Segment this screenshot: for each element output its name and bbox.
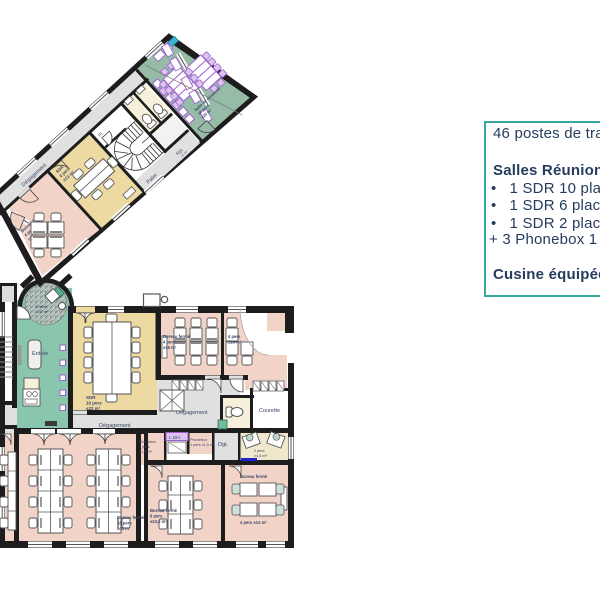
svg-text:Phonebox: Phonebox (139, 440, 156, 444)
svg-text:±23,5 m²: ±23,5 m² (150, 519, 167, 524)
svg-text:Dégagement: Dégagement (99, 423, 131, 429)
svg-text:4 pers: 4 pers (163, 340, 176, 345)
svg-text:±22 m²: ±22 m² (36, 309, 49, 314)
svg-text:Entrée: Entrée (32, 351, 48, 357)
svg-text:±1,5 m²: ±1,5 m² (139, 450, 153, 454)
svg-text:SDR: SDR (86, 395, 96, 400)
svg-text:±48 m²: ±48 m² (117, 526, 131, 531)
svg-text:Bureau fermé: Bureau fermé (150, 508, 178, 513)
svg-text:Bureau fermé: Bureau fermé (240, 474, 268, 479)
svg-text:6 pers: 6 pers (150, 514, 163, 519)
svg-text:Phonebox: Phonebox (190, 438, 207, 442)
svg-text:±4,5 m²: ±4,5 m² (254, 454, 268, 458)
svg-text:4 pers: 4 pers (228, 334, 241, 339)
svg-text:10 pers: 10 pers (86, 401, 102, 406)
svg-text:4 pers ±14 m²: 4 pers ±14 m² (240, 520, 267, 525)
svg-text:±16 m²: ±16 m² (163, 345, 177, 350)
svg-text:16 pers: 16 pers (117, 521, 132, 526)
svg-text:Courette: Courette (259, 408, 280, 414)
svg-text:Dgt.: Dgt. (218, 442, 229, 448)
svg-text:±22 m²: ±22 m² (86, 406, 101, 411)
svg-text:1 pers: 1 pers (139, 445, 150, 449)
svg-text:Bureau fermé: Bureau fermé (117, 515, 145, 520)
svg-text:L.DIA: L.DIA (169, 435, 180, 440)
svg-text:1 pers ±1,5 m²: 1 pers ±1,5 m² (190, 443, 215, 447)
svg-text:±13 m²: ±13 m² (228, 340, 242, 345)
svg-text:Bureau fermé: Bureau fermé (163, 334, 191, 339)
svg-text:2 pers: 2 pers (254, 449, 265, 453)
